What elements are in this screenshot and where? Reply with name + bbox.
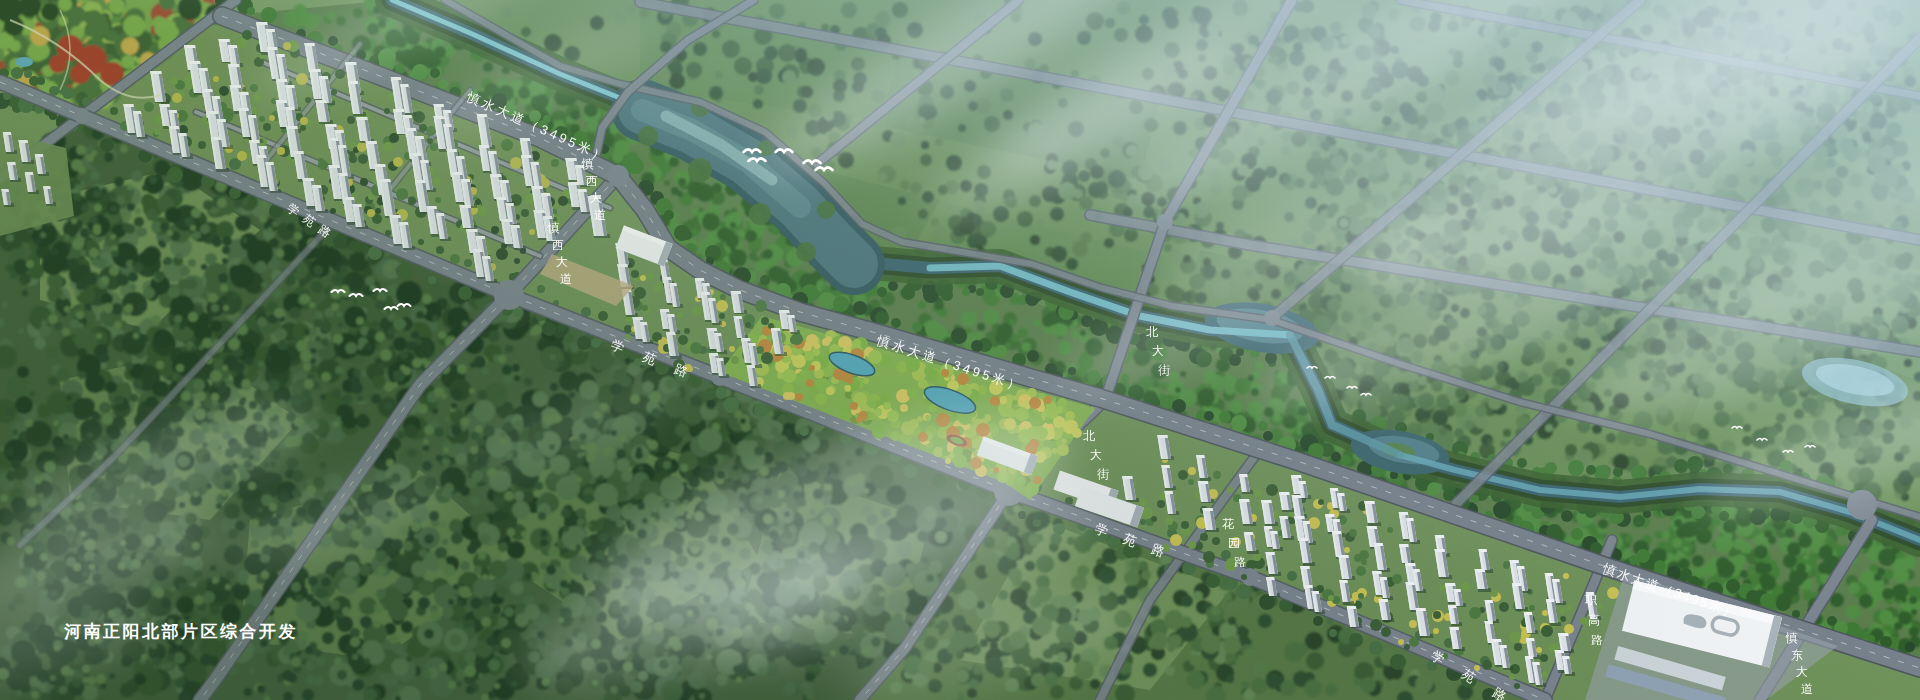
svg-text:大: 大 xyxy=(1796,665,1808,679)
svg-text:东: 东 xyxy=(1791,648,1803,662)
svg-text:大: 大 xyxy=(1090,448,1102,462)
svg-text:慎: 慎 xyxy=(547,221,560,235)
svg-text:道: 道 xyxy=(594,208,606,222)
svg-text:北: 北 xyxy=(1146,325,1158,339)
svg-text:北: 北 xyxy=(1083,429,1095,443)
svg-text:慎: 慎 xyxy=(581,157,594,171)
svg-text:路: 路 xyxy=(1234,555,1246,569)
svg-text:大: 大 xyxy=(590,191,602,205)
svg-text:河南正阳北部片区综合开发: 河南正阳北部片区综合开发 xyxy=(63,622,298,641)
svg-text:大: 大 xyxy=(556,255,568,269)
svg-text:路: 路 xyxy=(1591,633,1603,647)
svg-text:道: 道 xyxy=(1801,682,1813,696)
svg-text:职: 职 xyxy=(1585,593,1598,607)
svg-text:园: 园 xyxy=(1228,536,1240,550)
svg-text:慎: 慎 xyxy=(1785,631,1798,645)
svg-text:西: 西 xyxy=(552,238,564,252)
svg-text:西: 西 xyxy=(586,174,598,188)
svg-text:大: 大 xyxy=(1152,344,1164,358)
svg-text:道: 道 xyxy=(560,272,572,286)
svg-text:街: 街 xyxy=(1097,467,1109,481)
svg-text:高: 高 xyxy=(1588,613,1600,627)
svg-text:花: 花 xyxy=(1222,517,1234,531)
svg-text:街: 街 xyxy=(1158,363,1170,377)
